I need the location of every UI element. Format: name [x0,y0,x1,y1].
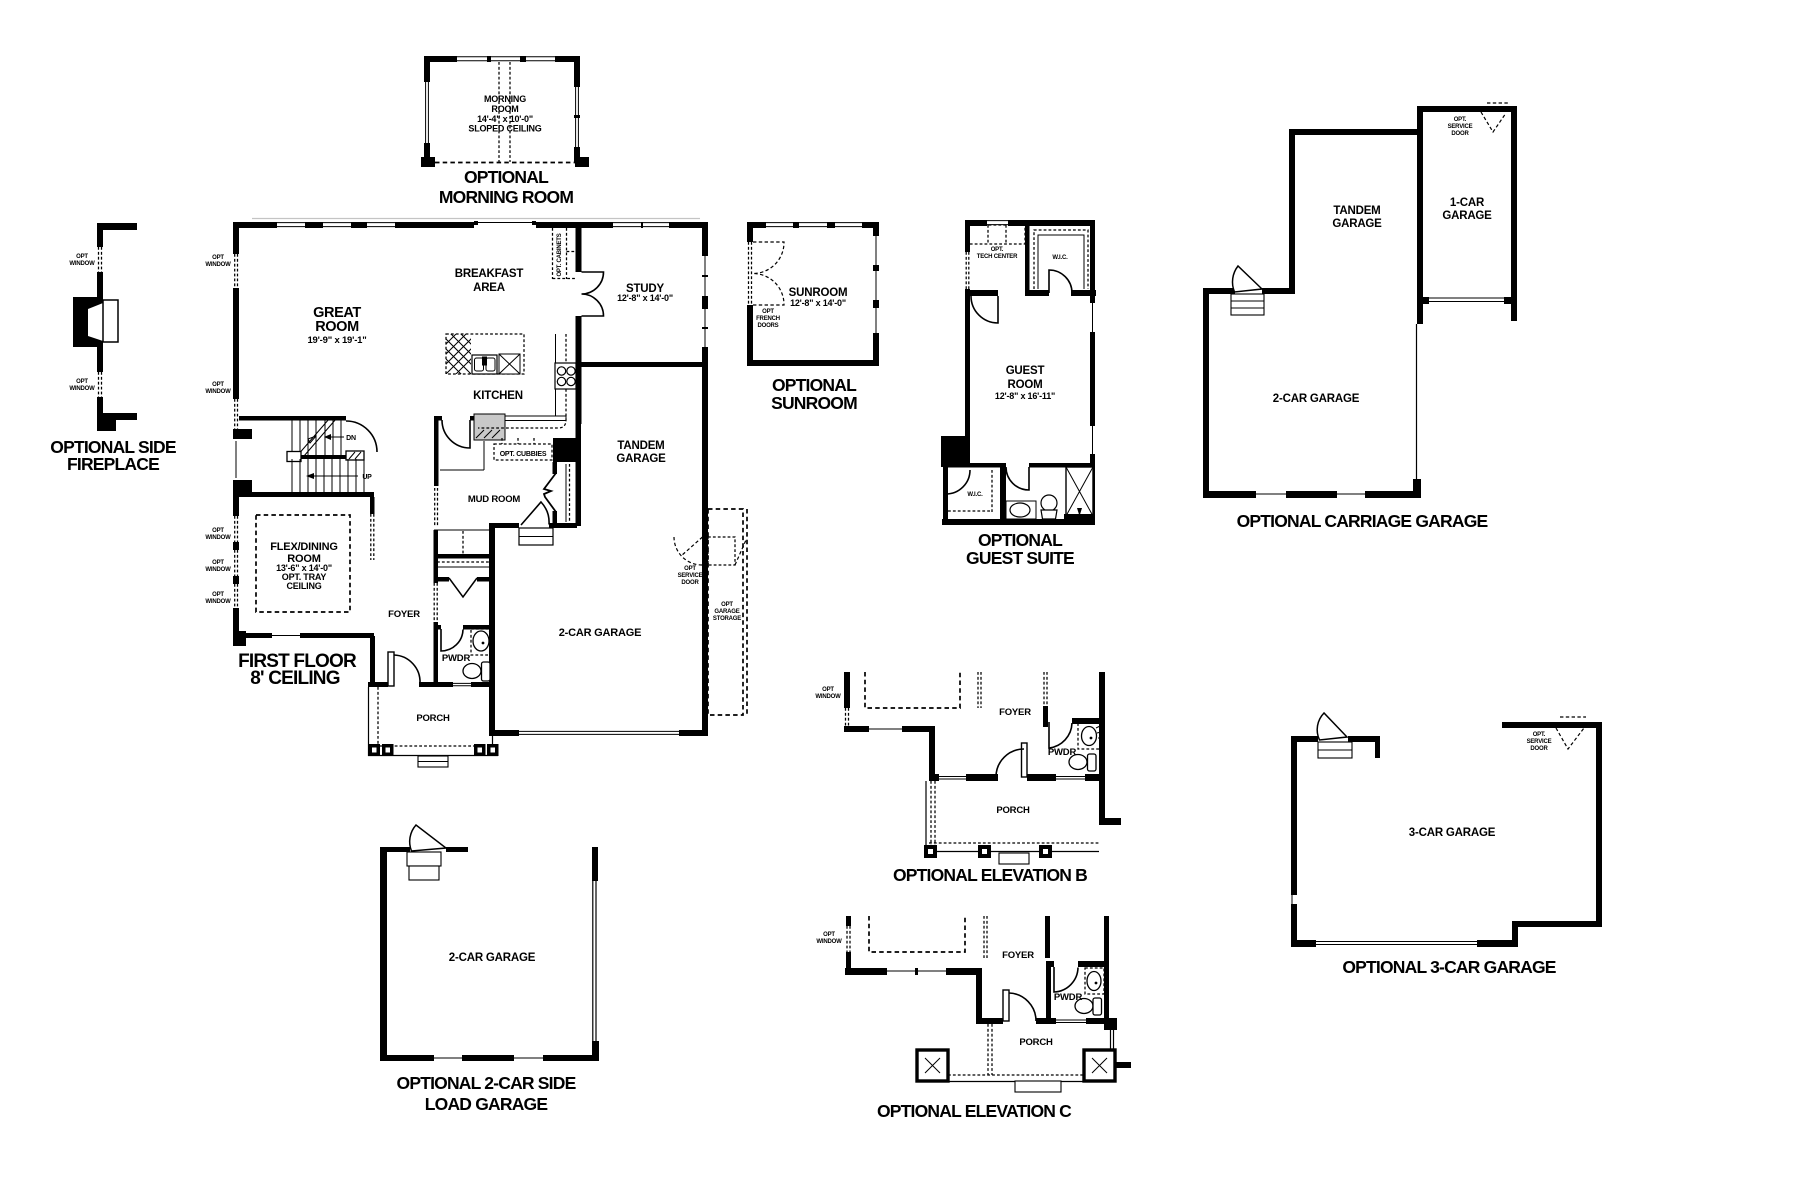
svg-text:TANDEM: TANDEM [617,440,664,452]
svg-text:UP: UP [362,474,372,481]
svg-text:ROOM: ROOM [315,319,359,335]
svg-text:W.I.C.: W.I.C. [967,492,983,498]
svg-text:2-CAR GARAGE: 2-CAR GARAGE [559,627,642,639]
svg-text:WINDOW: WINDOW [69,386,95,392]
svg-text:OPT: OPT [212,255,224,261]
svg-text:GARAGE: GARAGE [1442,210,1492,222]
svg-text:3-CAR GARAGE: 3-CAR GARAGE [1409,827,1496,839]
svg-text:MUD ROOM: MUD ROOM [468,494,521,505]
svg-text:PWDR: PWDR [1054,992,1083,1003]
svg-text:FOYER: FOYER [999,707,1031,718]
svg-text:OPTIONAL 3-CAR GARAGE: OPTIONAL 3-CAR GARAGE [1342,957,1555,977]
svg-text:DOORS: DOORS [757,323,778,329]
svg-text:LOAD GARAGE: LOAD GARAGE [425,1094,548,1114]
svg-text:GUEST: GUEST [1006,365,1045,377]
svg-text:DOOR: DOOR [1530,746,1548,752]
svg-text:OPT: OPT [822,687,834,693]
svg-text:PORCH: PORCH [416,713,450,724]
svg-text:OPTIONAL: OPTIONAL [464,167,549,187]
svg-text:OPT: OPT [762,309,774,315]
svg-text:OPT.: OPT. [1533,732,1546,738]
svg-text:OPT: OPT [823,932,835,938]
svg-text:GUEST SUITE: GUEST SUITE [966,548,1074,568]
svg-text:W.I.C.: W.I.C. [1052,255,1068,261]
svg-text:STORAGE: STORAGE [713,616,741,622]
svg-text:FLEX/DINING: FLEX/DINING [270,541,337,553]
svg-text:OPT.: OPT. [1454,117,1467,123]
svg-text:1-CAR: 1-CAR [1450,197,1485,209]
svg-text:AREA: AREA [473,282,505,294]
svg-text:OPT: OPT [212,528,224,534]
svg-text:WINDOW: WINDOW [205,262,231,268]
svg-text:8' CEILING: 8' CEILING [250,668,339,689]
svg-text:CEILING: CEILING [286,581,321,591]
svg-text:2-CAR GARAGE: 2-CAR GARAGE [1273,393,1360,405]
svg-text:WINDOW: WINDOW [205,567,231,573]
svg-text:MORNING ROOM: MORNING ROOM [439,187,574,207]
svg-text:FRENCH: FRENCH [756,316,780,322]
svg-text:DOOR: DOOR [681,580,699,586]
svg-text:OPT: OPT [684,566,696,572]
svg-text:OPT: OPT [76,379,88,385]
svg-text:GARAGE: GARAGE [714,609,739,615]
svg-text:WINDOW: WINDOW [816,939,842,945]
svg-text:SERVICE: SERVICE [1448,124,1473,130]
svg-text:OPT. CABINETS: OPT. CABINETS [557,233,563,276]
svg-text:FIREPLACE: FIREPLACE [67,454,159,474]
svg-text:BREAKFAST: BREAKFAST [455,268,524,280]
svg-text:GARAGE: GARAGE [1332,218,1382,230]
svg-text:FOYER: FOYER [1002,950,1034,961]
svg-text:12'-8" x 14'-0": 12'-8" x 14'-0" [790,298,846,308]
svg-text:ROOM: ROOM [1008,379,1043,391]
svg-text:OPT: OPT [721,602,733,608]
svg-text:SLOPED CEILING: SLOPED CEILING [468,124,541,134]
svg-text:WINDOW: WINDOW [205,389,231,395]
svg-text:PWDR: PWDR [1048,747,1077,758]
svg-text:OPT: OPT [212,592,224,598]
svg-text:OPTIONAL 2-CAR SIDE: OPTIONAL 2-CAR SIDE [397,1073,576,1093]
svg-text:DN: DN [346,435,356,442]
svg-text:WINDOW: WINDOW [205,599,231,605]
svg-text:2-CAR GARAGE: 2-CAR GARAGE [449,952,536,964]
svg-text:OPT.: OPT. [991,247,1004,253]
svg-text:WINDOW: WINDOW [205,535,231,541]
svg-text:WINDOW: WINDOW [815,694,841,700]
svg-text:WINDOW: WINDOW [69,261,95,267]
svg-text:GARAGE: GARAGE [616,453,666,465]
svg-text:PORCH: PORCH [996,805,1030,816]
svg-text:FOYER: FOYER [388,609,420,620]
svg-text:OPTIONAL: OPTIONAL [772,375,857,395]
svg-text:KITCHEN: KITCHEN [473,390,523,402]
svg-text:OPTIONAL ELEVATION C: OPTIONAL ELEVATION C [877,1101,1072,1121]
svg-text:ROOM: ROOM [491,104,518,114]
svg-text:12'-8" x 14'-0": 12'-8" x 14'-0" [617,293,673,303]
svg-text:OPT: OPT [212,382,224,388]
svg-text:TECH CENTER: TECH CENTER [977,254,1018,260]
svg-text:SERVICE: SERVICE [678,573,703,579]
svg-text:PORCH: PORCH [1019,1037,1053,1048]
svg-text:14'-4" x 10'-0": 14'-4" x 10'-0" [477,114,533,124]
svg-text:OPT: OPT [212,560,224,566]
svg-text:19'-9" x 19'-1": 19'-9" x 19'-1" [307,335,366,346]
svg-text:OPT. CUBBIES: OPT. CUBBIES [500,451,547,458]
svg-text:SUNROOM: SUNROOM [771,393,857,413]
svg-text:MORNING: MORNING [484,94,526,104]
svg-text:12'-8" x 16'-11": 12'-8" x 16'-11" [995,391,1055,401]
svg-text:OPTIONAL CARRIAGE GARAGE: OPTIONAL CARRIAGE GARAGE [1237,511,1488,531]
svg-text:OPTIONAL: OPTIONAL [978,530,1063,550]
svg-text:TANDEM: TANDEM [1333,205,1380,217]
svg-text:OPT: OPT [76,254,88,260]
svg-text:SERVICE: SERVICE [1527,739,1552,745]
svg-text:DOOR: DOOR [1451,131,1469,137]
svg-text:PWDR: PWDR [442,653,471,664]
svg-text:OPTIONAL ELEVATION B: OPTIONAL ELEVATION B [893,865,1087,885]
